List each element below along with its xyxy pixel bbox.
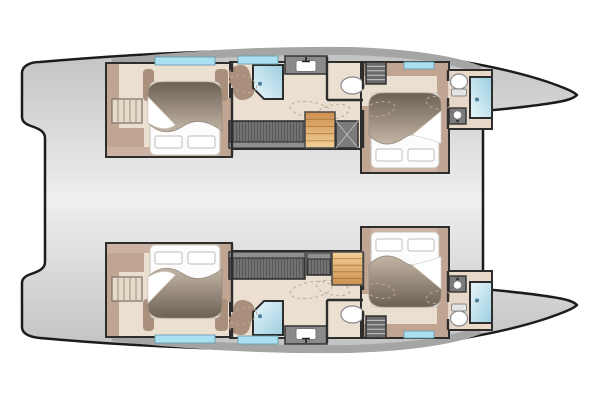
hull-port-aft-double-berth	[148, 82, 222, 155]
hull-starboard-forward-shower-shower-head	[475, 298, 479, 302]
hull-port-companionway-steps	[305, 112, 335, 148]
hull-starboard-companionway-steps-frame	[332, 252, 363, 285]
hull-port-mid-shower	[253, 65, 283, 99]
hull-starboard-forward-double-berth-pillow-left	[376, 239, 402, 251]
hull-starboard-forward-sink	[449, 276, 466, 292]
hull-port-forward-shower-tray	[470, 77, 492, 118]
hull-starboard-forward-cabin-shelves-frame	[366, 316, 386, 338]
hull-starboard-hull-locker-back	[307, 253, 331, 259]
hull-port-hull-window-aft	[155, 57, 215, 65]
hull-starboard-hull-settee	[229, 252, 305, 279]
hull-port-forward-double-berth	[369, 93, 441, 168]
hull-port-hull-settee	[229, 121, 305, 148]
hull-port-technical-hatch	[336, 121, 358, 148]
hull-port-mid-shower-shower-head	[258, 82, 262, 86]
hull-port-forward-toilet-bowl	[451, 74, 468, 89]
hull-starboard-hull-window-mid	[238, 336, 278, 344]
hull-port-forward-cabin-shelves	[366, 62, 386, 84]
hull-starboard-companionway-steps	[332, 252, 363, 285]
hull-starboard-mid-toilet-bowl	[341, 306, 364, 323]
hull-starboard-mid-shower-tray	[253, 301, 283, 335]
hull-port-forward-shower-shower-head	[475, 98, 479, 102]
hull-starboard-forward-double-berth-pillow-right	[408, 239, 434, 251]
hull-port-forward-toilet	[451, 74, 468, 96]
hull-port-aft-double-berth-pillow-left	[155, 136, 182, 148]
hull-port-forward-sink-faucet	[456, 120, 458, 122]
hull-port-mid-vanity-sink	[285, 56, 327, 74]
hull-starboard-aft-double-berth-pillow-right	[188, 252, 215, 264]
hull-starboard-mid-shower	[253, 301, 283, 335]
hull-starboard-forward-shower-tray	[470, 282, 492, 323]
hull-starboard-forward-toilet-tank	[452, 304, 467, 311]
hull-port-forward-sink-basin	[453, 111, 462, 120]
hull-starboard-mid-shower-shower-head	[258, 314, 262, 318]
hull-starboard-aft-cabin-ladder	[112, 277, 142, 301]
hull-port-mid-toilet-bowl	[341, 77, 364, 94]
hull-port-mid-shower-tray	[253, 65, 283, 99]
hull-starboard-aft-cabin-ladder-frame	[112, 277, 142, 301]
hull-starboard-hull-window-forward	[404, 331, 434, 338]
hull-port-forward-double-berth-pillow-left	[376, 149, 402, 161]
hull-port-aft-double-berth-pillow-right	[188, 136, 215, 148]
hull-starboard-forward-sink-faucet	[456, 278, 458, 280]
deck-plan-svg	[0, 0, 600, 400]
hull-starboard-forward-sink-basin	[453, 281, 462, 290]
catamaran-deck-plan	[0, 0, 600, 400]
hull-starboard-hull-settee-back	[229, 252, 305, 258]
hull-port-hull-settee-back	[229, 142, 305, 148]
hull-port-hull-window-mid	[238, 56, 278, 64]
hull-port-aft-cabin-ladder-frame	[112, 99, 142, 123]
hull-starboard-mid-toilet	[341, 306, 364, 323]
hull-port-mid-toilet	[341, 77, 364, 94]
hull-starboard-mid-vanity-sink	[285, 326, 327, 344]
hull-port-companionway-steps-frame	[305, 112, 335, 148]
hull-port-forward-toilet-tank	[452, 89, 467, 96]
hull-port-forward-shower	[470, 77, 492, 118]
hull-starboard-forward-shower	[470, 282, 492, 323]
hull-starboard-aft-double-berth	[148, 245, 222, 318]
hull-port-hull-window-forward	[404, 62, 434, 69]
hull-starboard-hull-window-aft	[155, 335, 215, 343]
hull-starboard-forward-toilet	[451, 304, 468, 326]
hull-starboard-forward-cabin-shelves	[366, 316, 386, 338]
hull-starboard-forward-toilet-bowl	[451, 311, 468, 326]
hull-starboard-hull-locker	[307, 253, 331, 275]
hull-port-forward-double-berth-pillow-right	[408, 149, 434, 161]
hull-port-forward-cabin-shelves-frame	[366, 62, 386, 84]
hull-starboard-aft-double-berth-pillow-left	[155, 252, 182, 264]
hull-port-aft-cabin-ladder	[112, 99, 142, 123]
hull-port-forward-sink	[449, 108, 466, 124]
hull-starboard-forward-double-berth	[369, 232, 441, 307]
